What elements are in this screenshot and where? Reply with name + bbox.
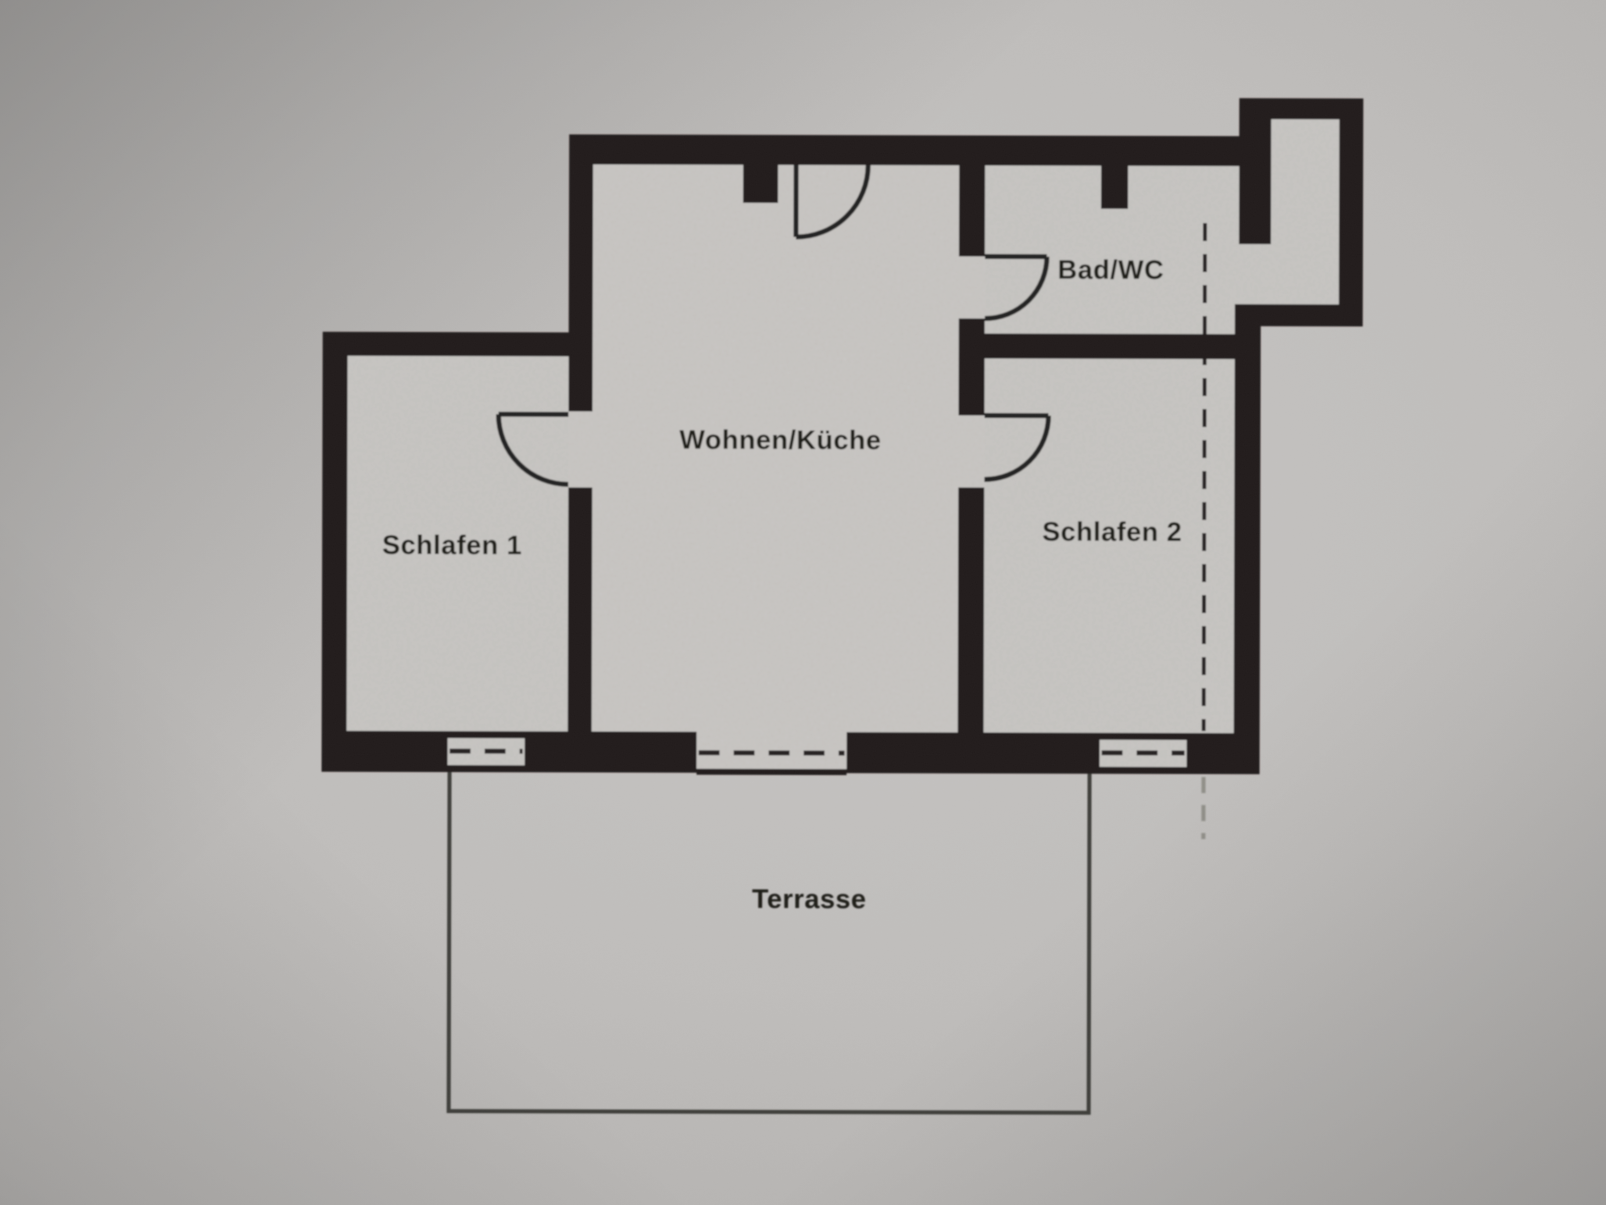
floor-plan-photo: Wohnen/Küche Schlafen 1 Schlafen 2 Bad/W… [0, 0, 1606, 1205]
photo-grain-overlay [0, 0, 1606, 1205]
floor-plan: Wohnen/Küche Schlafen 1 Schlafen 2 Bad/W… [0, 0, 1606, 1205]
